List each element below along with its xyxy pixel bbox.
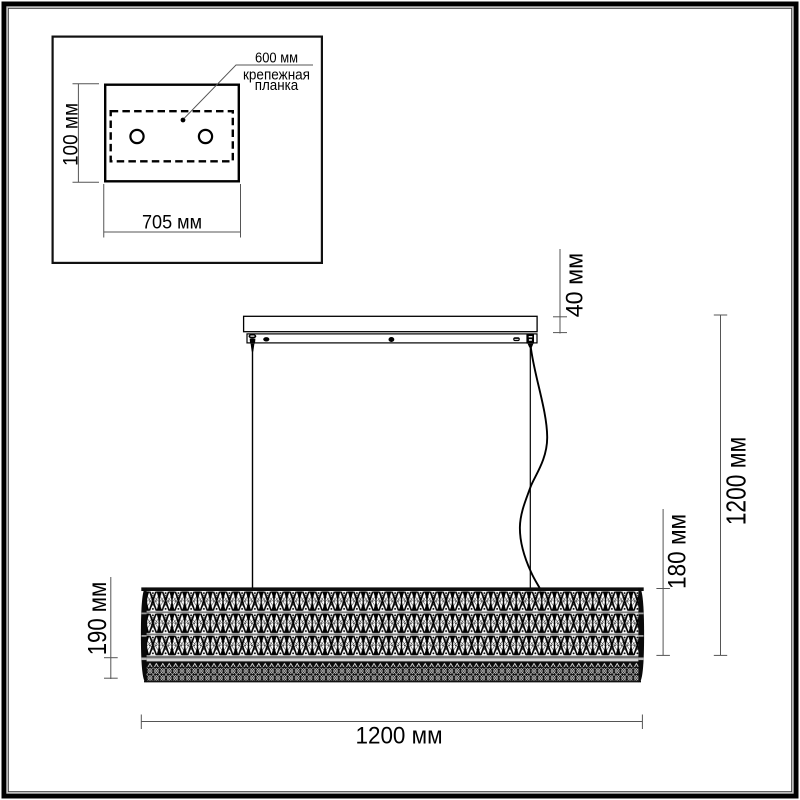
svg-text:1200 мм: 1200 мм (721, 437, 752, 526)
svg-text:100 мм: 100 мм (58, 103, 82, 166)
svg-text:190 мм: 190 мм (82, 582, 112, 656)
svg-text:705 мм: 705 мм (142, 212, 202, 234)
svg-text:планка: планка (255, 77, 299, 94)
svg-text:180 мм: 180 мм (665, 514, 692, 589)
svg-text:600 мм: 600 мм (255, 51, 298, 67)
svg-text:40 мм: 40 мм (562, 253, 589, 318)
svg-text:1200 мм: 1200 мм (356, 722, 443, 749)
